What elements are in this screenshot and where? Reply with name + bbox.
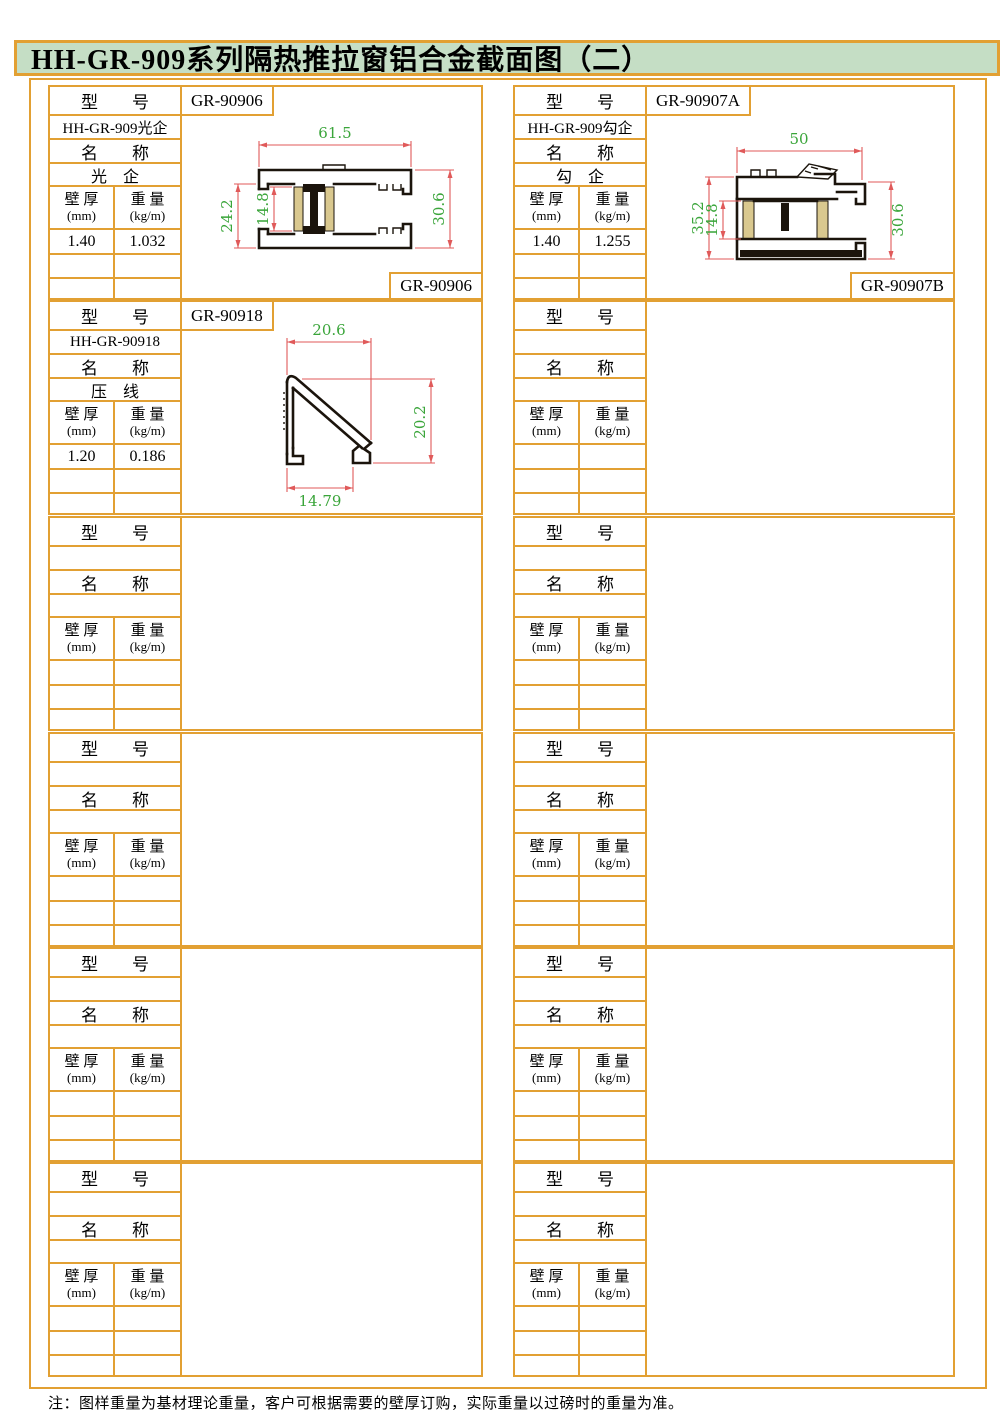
spec-table: 型 号 名 称 壁 厚 (mm) 重 量 (kg/m) bbox=[50, 518, 182, 729]
dim-height: 30.6 bbox=[430, 192, 448, 225]
wall-thickness-value bbox=[515, 1092, 580, 1117]
drawing-area bbox=[647, 1164, 953, 1375]
name-value bbox=[515, 1241, 645, 1264]
empty-cell bbox=[50, 686, 115, 710]
wall-thickness-unit: (mm) bbox=[67, 424, 96, 438]
weight-label: 重 量 bbox=[596, 839, 630, 856]
name-value bbox=[50, 811, 180, 834]
weight-value: 0.186 bbox=[115, 445, 180, 470]
model-label: 型 号 bbox=[50, 734, 180, 763]
model-value bbox=[515, 547, 645, 571]
weight-label: 重 量 bbox=[596, 407, 630, 424]
empty-cell bbox=[515, 902, 580, 926]
wall-thickness-unit: (mm) bbox=[532, 424, 561, 438]
spec-table: 型 号 名 称 壁 厚 (mm) 重 量 (kg/m) bbox=[515, 1164, 647, 1375]
profile-section-drawing-gr90907b: 50 35.2 14.8 30.6 bbox=[647, 87, 953, 298]
empty-cell bbox=[580, 710, 645, 729]
weight-unit: (kg/m) bbox=[130, 424, 165, 438]
weight-unit: (kg/m) bbox=[595, 1286, 630, 1300]
empty-cell bbox=[115, 255, 180, 279]
wall-thickness-header: 壁 厚 (mm) bbox=[50, 834, 115, 877]
empty-cell bbox=[515, 494, 580, 513]
profile-tag: GR-90918 bbox=[180, 300, 274, 331]
wall-thickness-label: 壁 厚 bbox=[65, 839, 99, 856]
name-label: 名 称 bbox=[50, 1217, 180, 1241]
spec-table: 型 号 名 称 壁 厚 (mm) 重 量 (kg/m) bbox=[50, 949, 182, 1160]
profile-block-empty: 型 号 名 称 壁 厚 (mm) 重 量 (kg/m) bbox=[513, 300, 955, 515]
wall-thickness-header: 壁 厚 (mm) bbox=[50, 187, 115, 230]
empty-cell bbox=[115, 470, 180, 494]
weight-label: 重 量 bbox=[131, 1054, 165, 1071]
empty-cell bbox=[50, 1356, 115, 1375]
wall-thickness-label: 壁 厚 bbox=[65, 192, 99, 209]
name-value: 光 企 bbox=[50, 164, 180, 187]
empty-cell bbox=[115, 686, 180, 710]
wall-thickness-label: 壁 厚 bbox=[65, 407, 99, 424]
empty-cell bbox=[580, 1117, 645, 1141]
name-label: 名 称 bbox=[515, 1217, 645, 1241]
weight-label: 重 量 bbox=[131, 1269, 165, 1286]
empty-cell bbox=[515, 470, 580, 494]
weight-header: 重 量 (kg/m) bbox=[580, 834, 645, 877]
empty-cell bbox=[50, 902, 115, 926]
weight-header: 重 量 (kg/m) bbox=[115, 1049, 180, 1092]
name-label: 名 称 bbox=[515, 787, 645, 811]
model-value bbox=[515, 331, 645, 355]
name-label: 名 称 bbox=[50, 140, 180, 164]
weight-unit: (kg/m) bbox=[130, 640, 165, 654]
weight-label: 重 量 bbox=[131, 839, 165, 856]
weight-value bbox=[115, 1092, 180, 1117]
drawing-area bbox=[647, 949, 953, 1160]
profile-corner-label: GR-90907B bbox=[850, 272, 955, 300]
wall-thickness-unit: (mm) bbox=[67, 856, 96, 870]
weight-unit: (kg/m) bbox=[130, 1071, 165, 1085]
model-value bbox=[50, 763, 180, 787]
wall-thickness-unit: (mm) bbox=[67, 1286, 96, 1300]
profile-block-gr90907a: 型 号 HH-GR-909勾企 名 称 勾 企 壁 厚 (mm) 重 量 (kg… bbox=[513, 85, 955, 300]
weight-header: 重 量 (kg/m) bbox=[115, 618, 180, 661]
wall-thickness-label: 壁 厚 bbox=[530, 1269, 564, 1286]
weight-value bbox=[115, 877, 180, 902]
wall-thickness-label: 壁 厚 bbox=[530, 1054, 564, 1071]
name-label: 名 称 bbox=[515, 1002, 645, 1026]
wall-thickness-label: 壁 厚 bbox=[530, 407, 564, 424]
empty-cell bbox=[50, 279, 115, 298]
dim-insulation: 14.8 bbox=[703, 203, 721, 236]
profile-tag: GR-90906 bbox=[180, 85, 274, 116]
empty-cell bbox=[515, 1356, 580, 1375]
drawing-area: GR-90918 20.6 20.2 bbox=[182, 302, 481, 513]
weight-value bbox=[580, 445, 645, 470]
wall-thickness-unit: (mm) bbox=[532, 1286, 561, 1300]
wall-thickness-header: 壁 厚 (mm) bbox=[515, 834, 580, 877]
weight-unit: (kg/m) bbox=[130, 209, 165, 223]
empty-cell bbox=[50, 710, 115, 729]
spec-table: 型 号 HH-GR-909勾企 名 称 勾 企 壁 厚 (mm) 重 量 (kg… bbox=[515, 87, 647, 298]
profile-tag: GR-90907A bbox=[645, 85, 751, 116]
empty-cell bbox=[515, 686, 580, 710]
weight-value bbox=[580, 661, 645, 686]
name-value bbox=[50, 1241, 180, 1264]
profile-block-empty: 型 号 名 称 壁 厚 (mm) 重 量 (kg/m) bbox=[513, 1162, 955, 1377]
spec-table: 型 号 名 称 壁 厚 (mm) 重 量 (kg/m) bbox=[50, 1164, 182, 1375]
name-value bbox=[515, 595, 645, 618]
dim-insulation: 14.8 bbox=[254, 192, 272, 225]
weight-label: 重 量 bbox=[596, 192, 630, 209]
drawing-area bbox=[182, 734, 481, 945]
wall-thickness-value: 1.40 bbox=[50, 230, 115, 255]
model-label: 型 号 bbox=[50, 87, 180, 116]
model-label: 型 号 bbox=[515, 734, 645, 763]
empty-cell bbox=[50, 1117, 115, 1141]
wall-thickness-value bbox=[50, 877, 115, 902]
name-label: 名 称 bbox=[50, 571, 180, 595]
weight-value bbox=[580, 1092, 645, 1117]
model-label: 型 号 bbox=[50, 302, 180, 331]
drawing-area bbox=[647, 302, 953, 513]
wall-thickness-header: 壁 厚 (mm) bbox=[515, 187, 580, 230]
model-label: 型 号 bbox=[515, 949, 645, 978]
catalog-page: HH-GR-909系列隔热推拉窗铝合金截面图（二） 型 号 HH-GR-909光… bbox=[0, 0, 1000, 1415]
weight-value: 1.255 bbox=[580, 230, 645, 255]
weight-value bbox=[115, 661, 180, 686]
wall-thickness-label: 壁 厚 bbox=[530, 192, 564, 209]
weight-header: 重 量 (kg/m) bbox=[580, 618, 645, 661]
profile-block-empty: 型 号 名 称 壁 厚 (mm) 重 量 (kg/m) bbox=[513, 516, 955, 731]
empty-cell bbox=[515, 255, 580, 279]
wall-thickness-unit: (mm) bbox=[532, 1071, 561, 1085]
empty-cell bbox=[50, 494, 115, 513]
empty-cell bbox=[515, 710, 580, 729]
drawing-area bbox=[182, 518, 481, 729]
weight-unit: (kg/m) bbox=[595, 209, 630, 223]
wall-thickness-value bbox=[515, 877, 580, 902]
empty-cell bbox=[115, 1141, 180, 1160]
spec-table: 型 号 名 称 壁 厚 (mm) 重 量 (kg/m) bbox=[515, 949, 647, 1160]
model-label: 型 号 bbox=[515, 518, 645, 547]
model-label: 型 号 bbox=[515, 87, 645, 116]
name-label: 名 称 bbox=[515, 355, 645, 379]
model-label: 型 号 bbox=[50, 518, 180, 547]
profile-block-empty: 型 号 名 称 壁 厚 (mm) 重 量 (kg/m) bbox=[48, 1162, 483, 1377]
empty-cell bbox=[580, 494, 645, 513]
profile-block-empty: 型 号 名 称 壁 厚 (mm) 重 量 (kg/m) bbox=[48, 947, 483, 1162]
dim-left-height: 24.2 bbox=[218, 199, 236, 232]
model-label: 型 号 bbox=[515, 1164, 645, 1193]
drawing-area: GR-90907A bbox=[647, 87, 953, 298]
dim-width: 61.5 bbox=[318, 124, 351, 142]
name-value bbox=[515, 811, 645, 834]
wall-thickness-value bbox=[515, 661, 580, 686]
weight-header: 重 量 (kg/m) bbox=[115, 187, 180, 230]
weight-value: 1.032 bbox=[115, 230, 180, 255]
dim-height: 20.2 bbox=[411, 405, 429, 438]
wall-thickness-unit: (mm) bbox=[67, 640, 96, 654]
empty-cell bbox=[115, 1332, 180, 1356]
empty-cell bbox=[115, 494, 180, 513]
weight-label: 重 量 bbox=[596, 1269, 630, 1286]
profile-section-drawing-gr90918: 20.6 20.2 14.79 bbox=[182, 302, 481, 513]
name-value bbox=[515, 379, 645, 402]
weight-unit: (kg/m) bbox=[130, 1286, 165, 1300]
wall-thickness-header: 壁 厚 (mm) bbox=[50, 1049, 115, 1092]
weight-header: 重 量 (kg/m) bbox=[580, 1264, 645, 1307]
name-value: 压 线 bbox=[50, 379, 180, 402]
dim-width: 50 bbox=[789, 130, 808, 148]
model-value bbox=[515, 978, 645, 1002]
weight-unit: (kg/m) bbox=[595, 424, 630, 438]
model-value bbox=[50, 978, 180, 1002]
profile-block-empty: 型 号 名 称 壁 厚 (mm) 重 量 (kg/m) bbox=[48, 732, 483, 947]
weight-label: 重 量 bbox=[131, 623, 165, 640]
weight-header: 重 量 (kg/m) bbox=[115, 1264, 180, 1307]
profile-section-drawing-gr90906: 61.5 30.6 24.2 14.8 bbox=[182, 87, 481, 298]
empty-cell bbox=[50, 1332, 115, 1356]
empty-cell bbox=[580, 255, 645, 279]
empty-cell bbox=[515, 926, 580, 945]
wall-thickness-label: 壁 厚 bbox=[530, 623, 564, 640]
weight-unit: (kg/m) bbox=[595, 1071, 630, 1085]
empty-cell bbox=[50, 1141, 115, 1160]
wall-thickness-unit: (mm) bbox=[532, 209, 561, 223]
wall-thickness-header: 壁 厚 (mm) bbox=[515, 1049, 580, 1092]
wall-thickness-unit: (mm) bbox=[67, 1071, 96, 1085]
wall-thickness-value bbox=[50, 661, 115, 686]
drawing-area bbox=[647, 734, 953, 945]
model-value bbox=[515, 763, 645, 787]
profile-block-empty: 型 号 名 称 壁 厚 (mm) 重 量 (kg/m) bbox=[513, 732, 955, 947]
spec-table: 型 号 名 称 壁 厚 (mm) 重 量 (kg/m) bbox=[50, 734, 182, 945]
profile-corner-label: GR-90906 bbox=[389, 272, 483, 300]
model-value: HH-GR-909光企 bbox=[50, 116, 180, 140]
weight-label: 重 量 bbox=[131, 192, 165, 209]
spec-table: 型 号 HH-GR-909光企 名 称 光 企 壁 厚 (mm) 重 量 (kg… bbox=[50, 87, 182, 298]
wall-thickness-header: 壁 厚 (mm) bbox=[515, 1264, 580, 1307]
empty-cell bbox=[515, 1117, 580, 1141]
drawing-area bbox=[182, 949, 481, 1160]
wall-thickness-value bbox=[50, 1307, 115, 1332]
wall-thickness-header: 壁 厚 (mm) bbox=[515, 618, 580, 661]
empty-cell bbox=[580, 1332, 645, 1356]
weight-header: 重 量 (kg/m) bbox=[115, 834, 180, 877]
drawing-area bbox=[182, 1164, 481, 1375]
empty-cell bbox=[115, 902, 180, 926]
spec-table: 型 号 名 称 壁 厚 (mm) 重 量 (kg/m) bbox=[515, 302, 647, 513]
weight-label: 重 量 bbox=[131, 407, 165, 424]
wall-thickness-unit: (mm) bbox=[532, 856, 561, 870]
wall-thickness-label: 壁 厚 bbox=[65, 1269, 99, 1286]
empty-cell bbox=[115, 1356, 180, 1375]
empty-cell bbox=[580, 902, 645, 926]
empty-cell bbox=[580, 1141, 645, 1160]
name-label: 名 称 bbox=[515, 571, 645, 595]
weight-unit: (kg/m) bbox=[130, 856, 165, 870]
wall-thickness-value bbox=[515, 445, 580, 470]
weight-value bbox=[580, 877, 645, 902]
name-value bbox=[515, 1026, 645, 1049]
name-label: 名 称 bbox=[50, 1002, 180, 1026]
empty-cell bbox=[580, 686, 645, 710]
name-label: 名 称 bbox=[50, 787, 180, 811]
weight-header: 重 量 (kg/m) bbox=[115, 402, 180, 445]
spec-table: 型 号 HH-GR-90918 名 称 压 线 壁 厚 (mm) 重 量 (kg… bbox=[50, 302, 182, 513]
model-value bbox=[515, 1193, 645, 1217]
empty-cell bbox=[50, 255, 115, 279]
model-value: HH-GR-909勾企 bbox=[515, 116, 645, 140]
empty-cell bbox=[115, 710, 180, 729]
drawing-area: GR-90906 bbox=[182, 87, 481, 298]
wall-thickness-header: 壁 厚 (mm) bbox=[50, 618, 115, 661]
wall-thickness-value bbox=[515, 1307, 580, 1332]
weight-label: 重 量 bbox=[596, 623, 630, 640]
name-value: 勾 企 bbox=[515, 164, 645, 187]
name-value bbox=[50, 1026, 180, 1049]
weight-value bbox=[580, 1307, 645, 1332]
page-title: HH-GR-909系列隔热推拉窗铝合金截面图（二） bbox=[14, 40, 1000, 76]
weight-header: 重 量 (kg/m) bbox=[580, 187, 645, 230]
model-value bbox=[50, 1193, 180, 1217]
empty-cell bbox=[515, 1332, 580, 1356]
empty-cell bbox=[115, 926, 180, 945]
wall-thickness-label: 壁 厚 bbox=[65, 623, 99, 640]
profile-block-empty: 型 号 名 称 壁 厚 (mm) 重 量 (kg/m) bbox=[48, 516, 483, 731]
empty-cell bbox=[515, 1141, 580, 1160]
empty-cell bbox=[50, 470, 115, 494]
spec-table: 型 号 名 称 壁 厚 (mm) 重 量 (kg/m) bbox=[515, 518, 647, 729]
empty-cell bbox=[115, 279, 180, 298]
profile-block-gr90906: 型 号 HH-GR-909光企 名 称 光 企 壁 厚 (mm) 重 量 (kg… bbox=[48, 85, 483, 300]
wall-thickness-unit: (mm) bbox=[532, 640, 561, 654]
model-label: 型 号 bbox=[50, 949, 180, 978]
name-value bbox=[50, 595, 180, 618]
wall-thickness-value: 1.20 bbox=[50, 445, 115, 470]
wall-thickness-header: 壁 厚 (mm) bbox=[515, 402, 580, 445]
model-label: 型 号 bbox=[515, 302, 645, 331]
weight-header: 重 量 (kg/m) bbox=[580, 402, 645, 445]
drawing-area bbox=[647, 518, 953, 729]
wall-thickness-label: 壁 厚 bbox=[530, 839, 564, 856]
empty-cell bbox=[580, 1356, 645, 1375]
weight-label: 重 量 bbox=[596, 1054, 630, 1071]
empty-cell bbox=[115, 1117, 180, 1141]
profile-block-empty: 型 号 名 称 壁 厚 (mm) 重 量 (kg/m) bbox=[513, 947, 955, 1162]
profile-block-gr90918: 型 号 HH-GR-90918 名 称 压 线 壁 厚 (mm) 重 量 (kg… bbox=[48, 300, 483, 515]
model-value: HH-GR-90918 bbox=[50, 331, 180, 355]
wall-thickness-unit: (mm) bbox=[67, 209, 96, 223]
weight-unit: (kg/m) bbox=[595, 856, 630, 870]
wall-thickness-header: 壁 厚 (mm) bbox=[50, 1264, 115, 1307]
model-label: 型 号 bbox=[50, 1164, 180, 1193]
empty-cell bbox=[580, 470, 645, 494]
empty-cell bbox=[580, 279, 645, 298]
empty-cell bbox=[580, 926, 645, 945]
dim-bottom: 14.79 bbox=[299, 492, 342, 510]
weight-header: 重 量 (kg/m) bbox=[580, 1049, 645, 1092]
dim-height: 30.6 bbox=[889, 203, 907, 236]
empty-cell bbox=[50, 926, 115, 945]
model-value bbox=[50, 547, 180, 571]
wall-thickness-label: 壁 厚 bbox=[65, 1054, 99, 1071]
weight-unit: (kg/m) bbox=[595, 640, 630, 654]
spec-table: 型 号 名 称 壁 厚 (mm) 重 量 (kg/m) bbox=[515, 734, 647, 945]
wall-thickness-header: 壁 厚 (mm) bbox=[50, 402, 115, 445]
name-label: 名 称 bbox=[50, 355, 180, 379]
weight-value bbox=[115, 1307, 180, 1332]
empty-cell bbox=[515, 279, 580, 298]
dim-width: 20.6 bbox=[312, 321, 345, 339]
wall-thickness-value bbox=[50, 1092, 115, 1117]
name-label: 名 称 bbox=[515, 140, 645, 164]
footnote: 注：图样重量为基材理论重量，客户可根据需要的壁厚订购，实际重量以过磅时的重量为准… bbox=[48, 1392, 684, 1413]
wall-thickness-value: 1.40 bbox=[515, 230, 580, 255]
